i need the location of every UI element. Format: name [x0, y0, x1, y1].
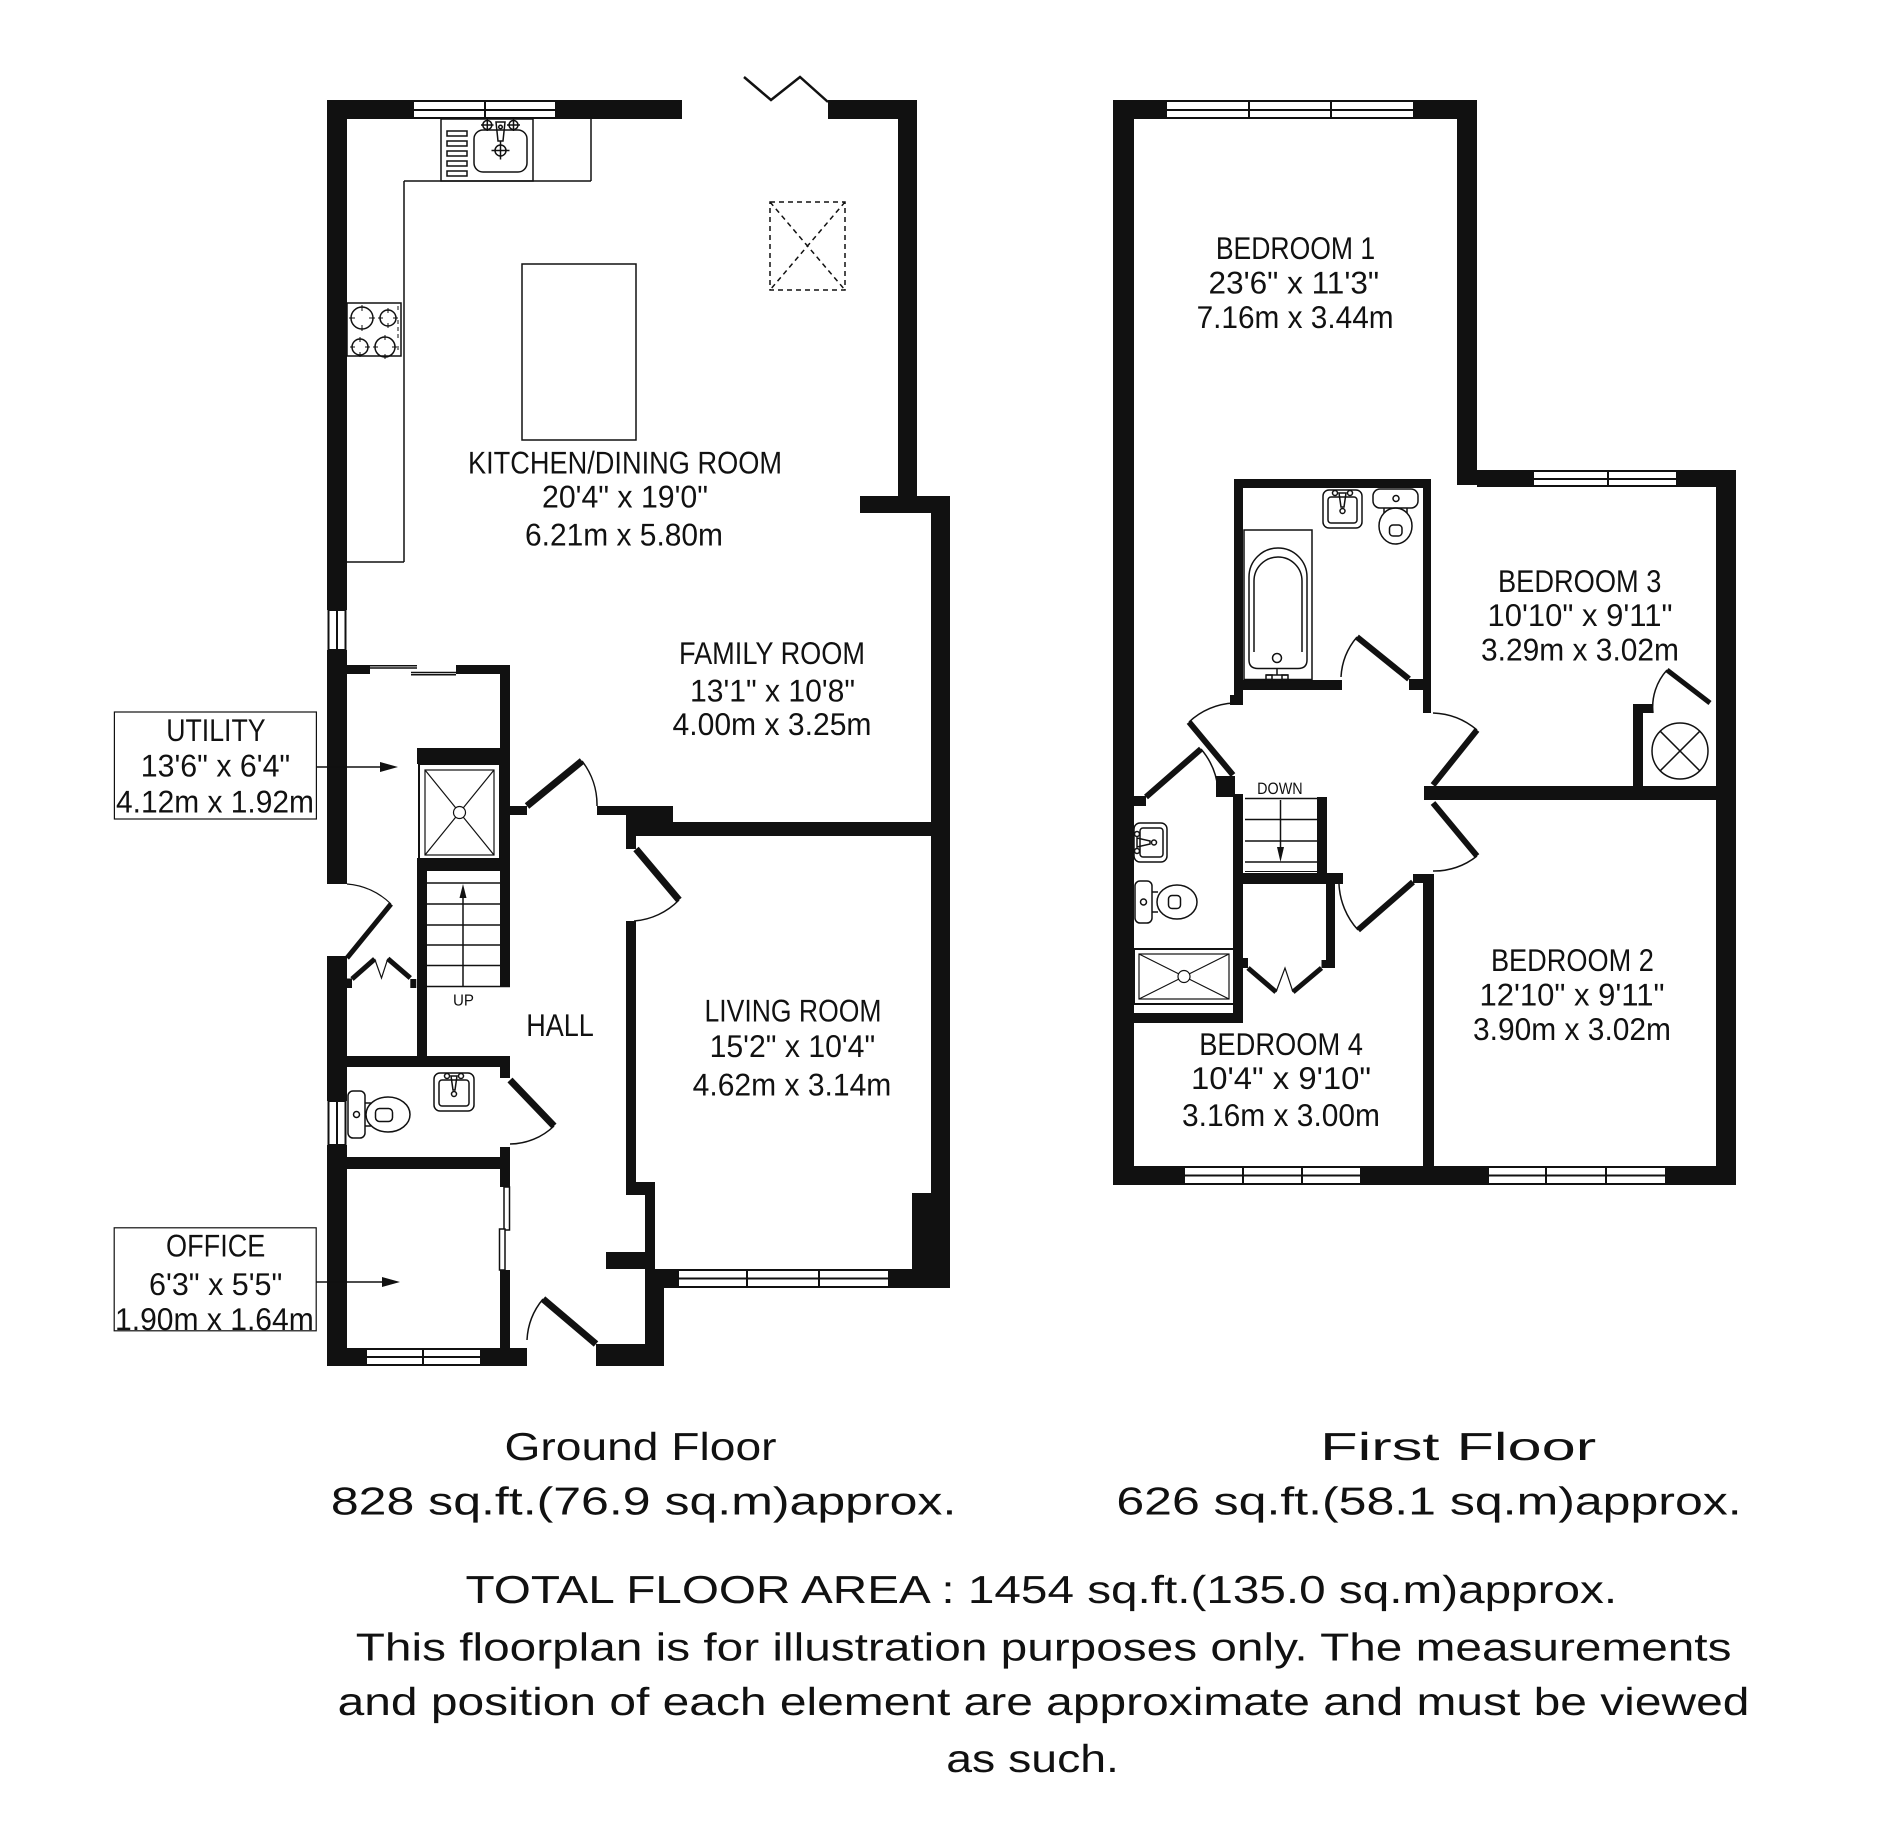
svg-text:LIVING ROOM: LIVING ROOM	[705, 992, 882, 1028]
svg-text:12'10" x 9'11": 12'10" x 9'11"	[1480, 977, 1665, 1013]
svg-text:and position of each element a: and position of each element are approxi…	[338, 1681, 1750, 1724]
svg-text:4.62m x 3.14m: 4.62m x 3.14m	[693, 1066, 892, 1102]
svg-text:20'4" x 19'0": 20'4" x 19'0"	[542, 479, 708, 515]
svg-text:4.12m x 1.92m: 4.12m x 1.92m	[116, 783, 314, 819]
svg-text:DOWN: DOWN	[1257, 780, 1303, 798]
svg-text:13'1" x 10'8": 13'1" x 10'8"	[690, 673, 855, 709]
svg-text:828 sq.ft.(76.9 sq.m)approx.: 828 sq.ft.(76.9 sq.m)approx.	[331, 1481, 957, 1524]
svg-text:3.29m x 3.02m: 3.29m x 3.02m	[1481, 632, 1679, 668]
svg-text:13'6" x 6'4": 13'6" x 6'4"	[141, 748, 290, 784]
svg-text:FAMILY ROOM: FAMILY ROOM	[679, 635, 865, 671]
svg-text:10'10" x 9'11": 10'10" x 9'11"	[1488, 597, 1673, 633]
svg-text:7.16m x 3.44m: 7.16m x 3.44m	[1197, 299, 1394, 335]
svg-text:626 sq.ft.(58.1 sq.m)approx.: 626 sq.ft.(58.1 sq.m)approx.	[1116, 1481, 1741, 1524]
svg-text:UP: UP	[453, 993, 474, 1010]
svg-text:OFFICE: OFFICE	[166, 1228, 265, 1264]
svg-text:BEDROOM 4: BEDROOM 4	[1199, 1026, 1363, 1062]
svg-text:HALL: HALL	[526, 1007, 594, 1043]
svg-text:This floorplan is for illustra: This floorplan is for illustration purpo…	[356, 1626, 1732, 1669]
svg-text:as such.: as such.	[946, 1738, 1119, 1781]
svg-text:3.90m x 3.02m: 3.90m x 3.02m	[1473, 1011, 1671, 1047]
svg-text:BEDROOM 2: BEDROOM 2	[1491, 942, 1654, 978]
svg-text:4.00m x 3.25m: 4.00m x 3.25m	[673, 706, 872, 742]
svg-text:Ground Floor: Ground Floor	[505, 1426, 777, 1469]
svg-text:3.16m x 3.00m: 3.16m x 3.00m	[1182, 1097, 1380, 1133]
svg-text:KITCHEN/DINING ROOM: KITCHEN/DINING ROOM	[468, 445, 782, 481]
svg-text:6'3" x 5'5": 6'3" x 5'5"	[149, 1266, 282, 1302]
svg-text:23'6" x 11'3": 23'6" x 11'3"	[1209, 264, 1380, 300]
svg-text:BEDROOM 1: BEDROOM 1	[1216, 230, 1375, 266]
svg-text:BEDROOM 3: BEDROOM 3	[1498, 563, 1661, 599]
svg-text:First Floor: First Floor	[1320, 1426, 1596, 1469]
svg-text:TOTAL FLOOR AREA : 1454 sq.ft.: TOTAL FLOOR AREA : 1454 sq.ft.(135.0 sq.…	[466, 1569, 1618, 1612]
svg-text:UTILITY: UTILITY	[166, 712, 265, 748]
svg-text:1.90m x 1.64m: 1.90m x 1.64m	[115, 1301, 314, 1337]
svg-text:15'2" x 10'4": 15'2" x 10'4"	[710, 1028, 876, 1064]
svg-text:6.21m x 5.80m: 6.21m x 5.80m	[525, 517, 723, 553]
svg-text:10'4" x 9'10": 10'4" x 9'10"	[1191, 1060, 1371, 1096]
